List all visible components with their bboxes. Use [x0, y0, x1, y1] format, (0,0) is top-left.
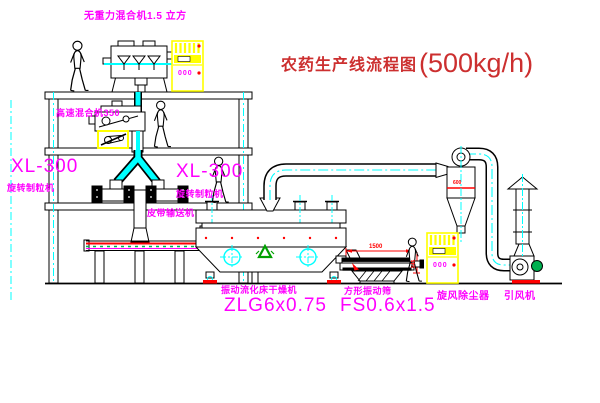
exhaust-duct [260, 163, 448, 211]
granulator-left-drawing [92, 180, 134, 202]
page-title: 农药生产线流程图 (500kg/h) [281, 48, 533, 79]
title-text: 农药生产线流程图 [281, 51, 417, 79]
dim-sieve-height: 545 [412, 260, 417, 268]
stack-drawing [508, 174, 537, 258]
label-cyclone: 旋风除尘器 [437, 292, 490, 302]
label-granulator-right-model: XL-300 [176, 162, 243, 181]
cyclone-drawing [447, 146, 475, 244]
process-flow-diagram: 农药生产线流程图 (500kg/h) 无重力混合机1.5 立方 高速混合机350… [0, 0, 600, 403]
person-top-floor [71, 41, 89, 91]
cabinet-ground-display: 000 [433, 262, 448, 269]
label-gravity-mixer: 无重力混合机1.5 立方 [84, 12, 187, 22]
label-granulator-left-model: XL-300 [11, 157, 78, 176]
label-granulator-left-name: 旋转制粒机 [7, 184, 55, 193]
label-sieve-model: FS0.6x1.5 [340, 296, 436, 315]
label-granulator-right-name: 旋转制粒机 [176, 190, 224, 199]
label-high-speed-mixer: 高速混合机350 [56, 109, 120, 118]
control-cabinet-top [172, 41, 203, 91]
person-second-floor [154, 101, 170, 147]
label-fan: 引风机 [504, 292, 536, 302]
control-cabinet-ground [427, 233, 458, 283]
dim-sieve-length: 1500 [369, 244, 382, 250]
label-dryer-name: 振动流化床干燥机 [221, 286, 297, 295]
dim-cyclone-body: 600 [453, 181, 461, 186]
cabinet-top-display: 000 [178, 70, 193, 77]
title-capacity: (500kg/h) [419, 48, 533, 79]
label-belt-conveyor: 皮带输送机 [147, 209, 195, 218]
label-dryer-model: ZLG6x0.75 [224, 296, 327, 315]
fan-drawing [510, 244, 543, 284]
gravity-mixer-drawing [103, 41, 176, 92]
